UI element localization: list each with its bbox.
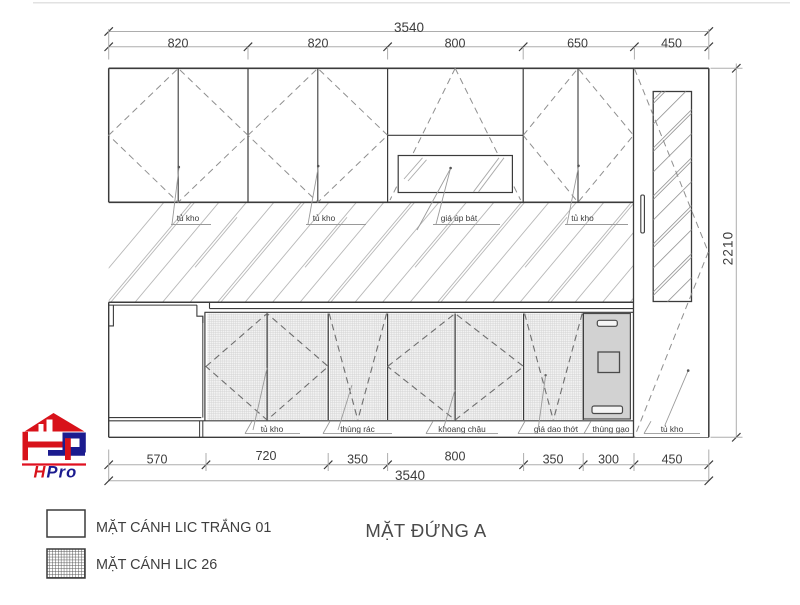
svg-text:tủ kho: tủ kho	[661, 424, 684, 434]
svg-text:800: 800	[445, 450, 466, 464]
svg-text:820: 820	[168, 36, 189, 50]
svg-text:thùng rác: thùng rác	[340, 424, 375, 434]
svg-text:800: 800	[445, 36, 466, 50]
svg-text:450: 450	[662, 452, 683, 466]
svg-text:3540: 3540	[394, 20, 424, 35]
svg-text:giá dao thớt: giá dao thớt	[534, 424, 579, 434]
svg-text:giá úp bát: giá úp bát	[441, 213, 478, 223]
svg-text:650: 650	[567, 36, 588, 50]
svg-text:3540: 3540	[395, 468, 425, 483]
svg-text:tủ kho: tủ kho	[177, 213, 200, 223]
svg-text:thùng gạo: thùng gạo	[593, 424, 630, 434]
svg-text:450: 450	[661, 36, 682, 50]
svg-text:350: 350	[347, 452, 368, 466]
svg-text:350: 350	[543, 452, 564, 466]
svg-text:300: 300	[598, 452, 619, 466]
svg-text:tủ kho: tủ kho	[313, 213, 336, 223]
svg-text:820: 820	[308, 36, 329, 50]
svg-text:570: 570	[147, 452, 168, 466]
svg-text:MẶT ĐỨNG A: MẶT ĐỨNG A	[365, 520, 486, 541]
svg-text:HPro: HPro	[34, 464, 78, 482]
svg-text:2210: 2210	[721, 231, 736, 265]
svg-text:720: 720	[256, 449, 277, 463]
svg-text:tủ kho: tủ kho	[571, 213, 594, 223]
svg-text:MẶT CÁNH LIC TRẮNG 01: MẶT CÁNH LIC TRẮNG 01	[96, 518, 271, 536]
svg-text:MẶT CÁNH LIC 26: MẶT CÁNH LIC 26	[96, 556, 217, 573]
svg-text:khoang chậu: khoang chậu	[438, 424, 486, 434]
svg-text:tủ kho: tủ kho	[261, 424, 284, 434]
